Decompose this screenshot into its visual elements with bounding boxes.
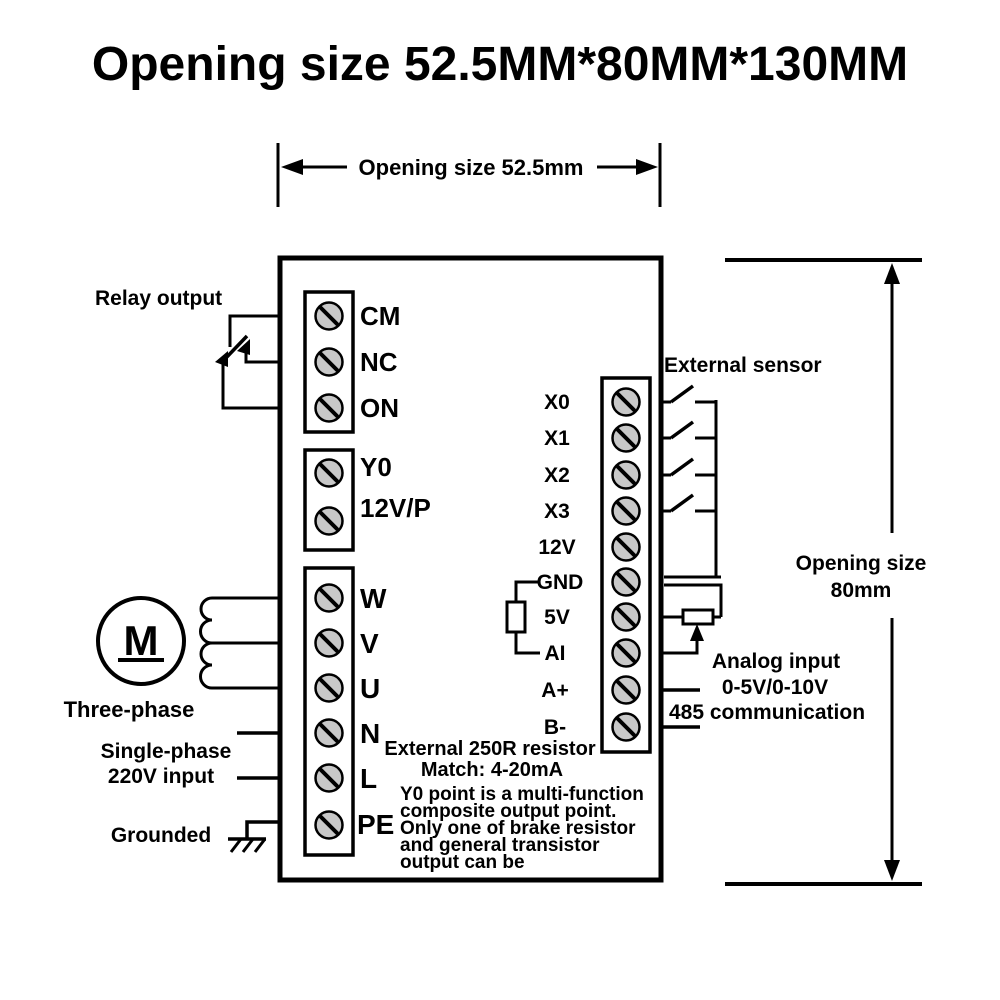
motor-letter: M [124,617,159,664]
three-phase-label: Three-phase [64,697,195,722]
analog-input-label-line3: 485 communication [669,701,865,724]
sensor-bus [664,400,721,577]
terminal-label-bminus: B- [544,716,566,739]
arrow-left-icon [281,159,303,175]
terminal-label-u: U [360,673,380,704]
potentiometer-symbol [683,610,713,624]
ground-connection: Grounded [111,822,281,852]
resistor-note-line1: External 250R resistor [384,738,595,760]
switch-blade [671,422,693,438]
switch-blade [671,495,693,511]
screw-terminal [316,349,343,376]
screw-terminal [613,498,640,525]
motor-circuit: M Three-phase [64,598,281,722]
terminal-label-x0: X0 [544,391,570,414]
external-sensor-label: External sensor [664,354,822,377]
wiring-diagram: Opening size 52.5MM*80MM*130MM Opening s… [0,0,1000,1000]
earth-ground-icon [231,839,265,852]
terminal-label-pe: PE [357,809,394,840]
screw-terminal [316,812,343,839]
screw-terminal [613,569,640,596]
switch-blade [671,459,693,475]
terminal-label-x3: X3 [544,500,570,523]
analog-input-label-line2: 0-5V/0-10V [722,676,828,699]
terminal-label-5v: 5V [544,606,570,629]
switch-blade [671,386,693,402]
terminal-label-12vp: 12V/P [360,493,431,523]
screw-terminal [316,460,343,487]
terminal-label-x1: X1 [544,427,570,450]
terminal-label-l: L [360,763,377,794]
terminal-label-aplus: A+ [541,679,568,702]
terminal-label-w: W [360,583,387,614]
y0-note-line5: output can be [400,852,525,873]
terminal-label-cm: CM [360,301,400,331]
relay-output-wiring: Relay output [95,287,281,408]
grounded-label: Grounded [111,824,211,847]
external-sensor-circuit: External sensor Analog input 0-5V/0-10V … [659,354,865,727]
terminal-label-v: V [360,628,379,659]
screw-terminal [613,640,640,667]
screw-terminal [613,714,640,741]
terminal-label-gnd: GND [537,571,584,594]
top-dimension-label: Opening size 52.5mm [359,155,584,180]
screw-terminal [316,765,343,792]
screw-terminal [613,604,640,631]
page-title: Opening size 52.5MM*80MM*130MM [92,38,908,91]
screw-terminal [613,462,640,489]
screw-terminal [316,720,343,747]
screw-terminal [316,395,343,422]
terminal-label-on: ON [360,393,399,423]
screw-terminal [613,534,640,561]
single-phase-label-line2: 220V input [108,765,214,788]
screw-terminal [316,585,343,612]
right-dimension-label-line1: Opening size [796,552,927,575]
terminal-label-ai: AI [545,642,566,665]
terminal-label-12v: 12V [538,536,575,559]
right-dimension-label-line2: 80mm [831,579,892,602]
arrow-right-icon [636,159,658,175]
screw-terminal [316,675,343,702]
arrow-up-icon [884,263,900,284]
screw-terminal [316,303,343,330]
screw-terminal [613,389,640,416]
terminal-label-n: N [360,718,380,749]
screw-terminal [316,508,343,535]
terminal-block-relay: CM NC ON [305,292,400,432]
arrow-down-icon [884,860,900,881]
terminal-label-x2: X2 [544,464,570,487]
diagram-canvas: Opening size 52.5MM*80MM*130MM Opening s… [0,0,1000,1000]
screw-terminal [613,677,640,704]
single-phase-label-line1: Single-phase [101,740,232,763]
winding-symbol [201,598,213,688]
wiper-arrow-icon [690,624,704,641]
terminal-label-nc: NC [360,347,398,377]
analog-input-label-line1: Analog input [712,650,840,673]
single-phase-input: Single-phase 220V input [101,733,281,788]
screw-terminal [316,630,343,657]
relay-output-label: Relay output [95,287,222,310]
screw-terminal [613,425,640,452]
terminal-label-y0: Y0 [360,452,392,482]
top-dimension: Opening size 52.5mm [278,143,660,207]
resistor-note-line2: Match: 4-20mA [421,759,563,781]
